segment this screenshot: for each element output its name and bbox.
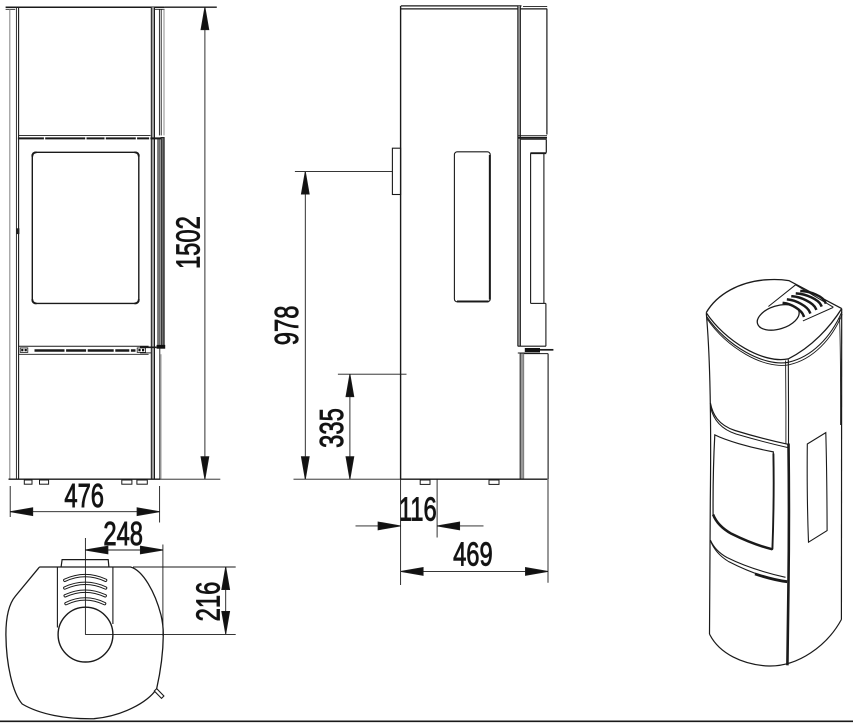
svg-text:248: 248 — [103, 516, 143, 553]
svg-text:335: 335 — [314, 408, 351, 448]
svg-text:476: 476 — [64, 478, 104, 515]
svg-text:978: 978 — [270, 306, 307, 346]
svg-text:469: 469 — [453, 537, 493, 574]
svg-text:1502: 1502 — [171, 216, 208, 269]
svg-text:116: 116 — [399, 492, 437, 529]
svg-text:216: 216 — [191, 582, 228, 622]
